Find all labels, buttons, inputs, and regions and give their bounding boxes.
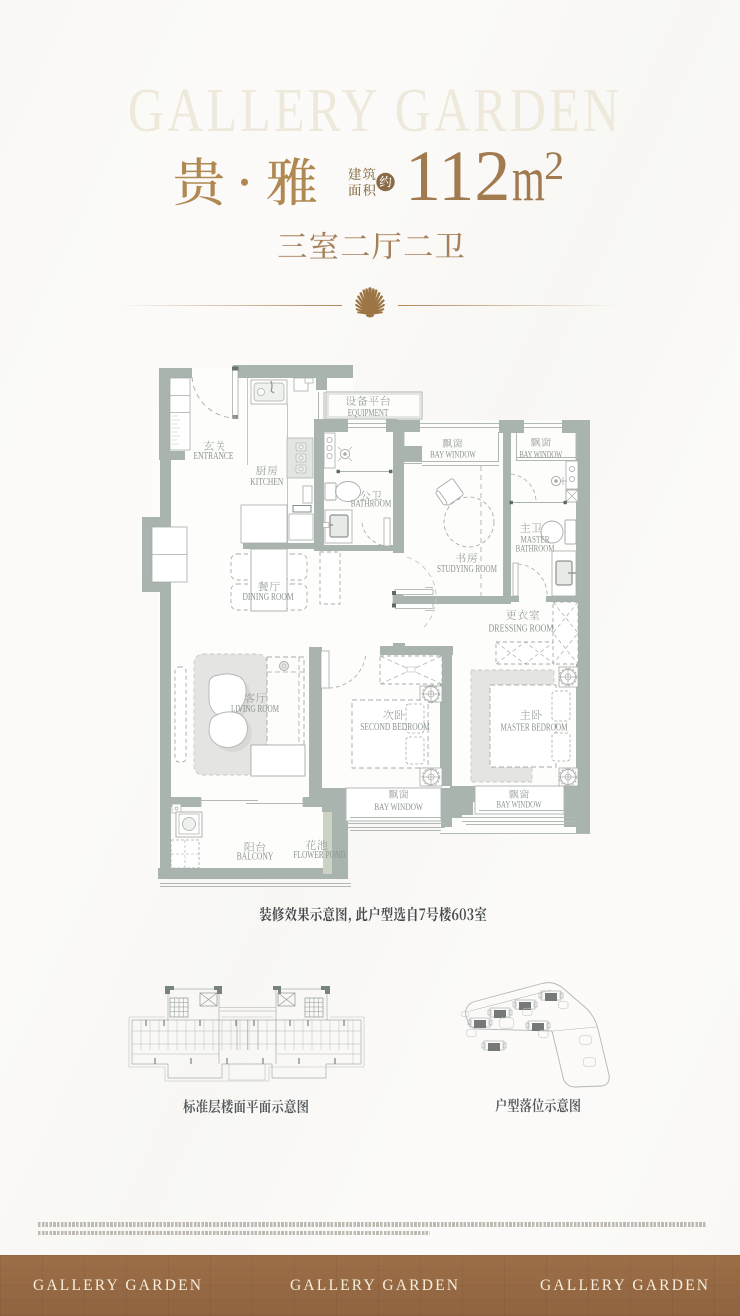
- svg-text:BAY WINDOW: BAY WINDOW: [519, 451, 562, 461]
- svg-text:KITCHEN: KITCHEN: [250, 477, 283, 488]
- svg-text:MASTER BEDROOM: MASTER BEDROOM: [501, 723, 568, 734]
- svg-text:DINING ROOM: DINING ROOM: [243, 592, 294, 603]
- svg-text:FLOWER POND: FLOWER POND: [293, 850, 345, 861]
- svg-text:STUDYING ROOM: STUDYING ROOM: [437, 564, 497, 575]
- svg-text:ENTRANCE: ENTRANCE: [194, 451, 234, 462]
- svg-text:SECOND BEDROOM: SECOND BEDROOM: [360, 722, 430, 733]
- svg-text:BALCONY: BALCONY: [237, 852, 274, 863]
- svg-text:BATHROOM: BATHROOM: [351, 499, 392, 509]
- svg-text:BAY WINDOW: BAY WINDOW: [430, 451, 476, 461]
- svg-text:BAY WINDOW: BAY WINDOW: [374, 803, 423, 813]
- svg-text:BATHROOM: BATHROOM: [516, 544, 555, 554]
- svg-text:LIVING ROOM: LIVING ROOM: [231, 704, 279, 715]
- svg-text:DRESSING ROOM: DRESSING ROOM: [489, 624, 554, 635]
- svg-text:BAY WINDOW: BAY WINDOW: [497, 801, 542, 811]
- svg-text:EQUIPMENT: EQUIPMENT: [348, 408, 389, 419]
